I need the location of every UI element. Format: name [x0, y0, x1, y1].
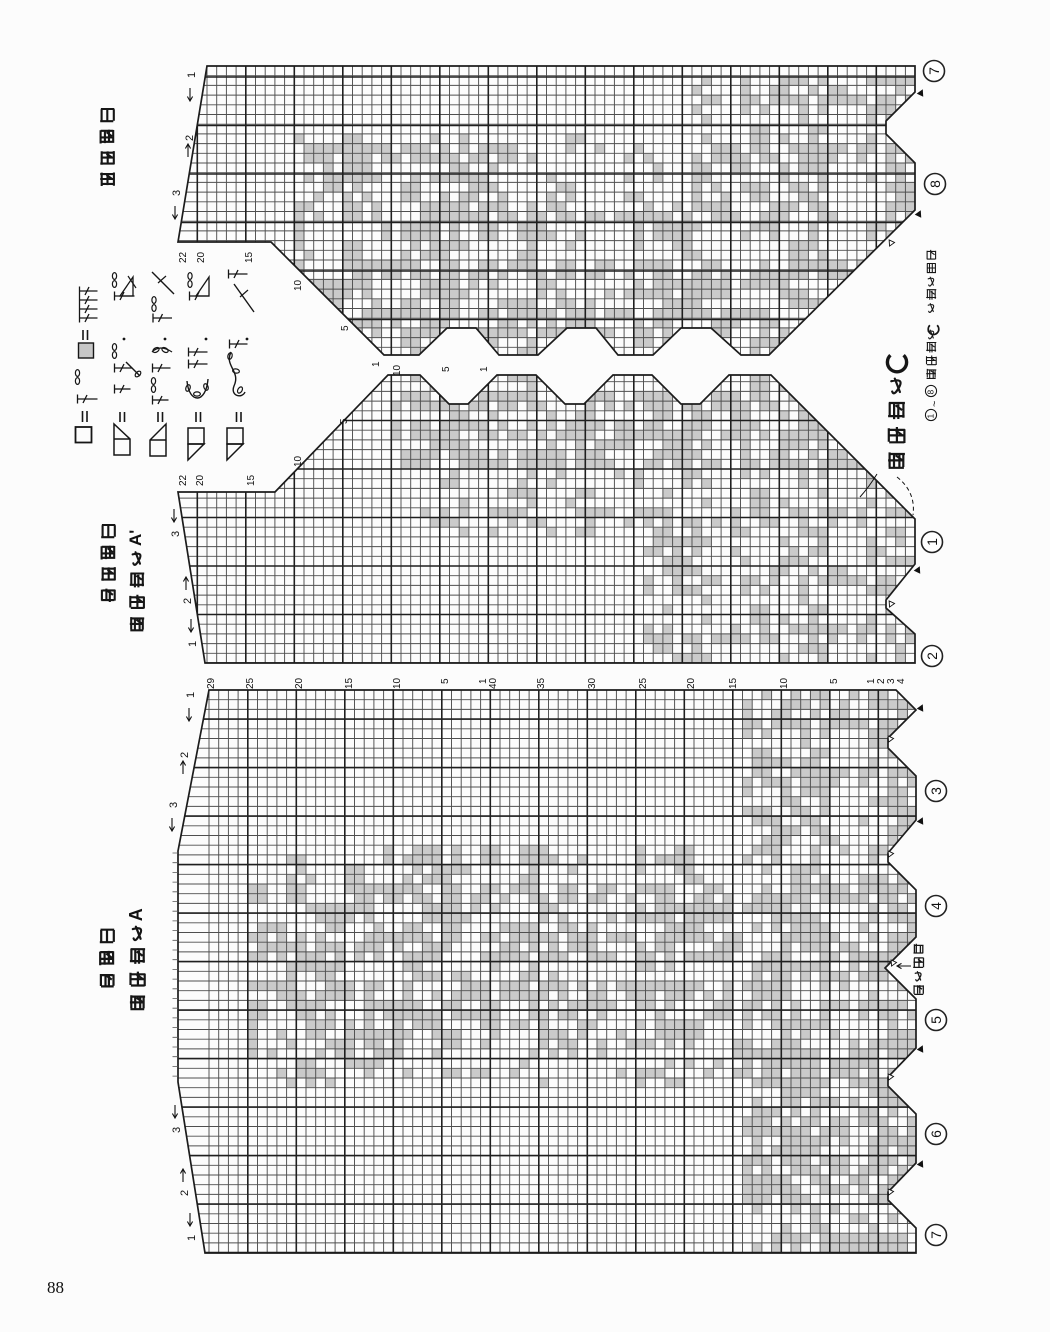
svg-text:~: ~ — [929, 401, 941, 407]
svg-text:1: 1 — [185, 692, 197, 698]
svg-text:20: 20 — [686, 677, 697, 689]
svg-text:25: 25 — [638, 677, 649, 689]
svg-text:10: 10 — [392, 677, 403, 689]
svg-text:1: 1 — [479, 366, 490, 372]
svg-text:15: 15 — [246, 474, 257, 486]
svg-text:7: 7 — [926, 67, 942, 75]
svg-text:2: 2 — [184, 135, 196, 141]
svg-text:22: 22 — [178, 251, 189, 263]
svg-text:10: 10 — [392, 364, 403, 376]
svg-text:5: 5 — [440, 678, 451, 684]
svg-text:3: 3 — [171, 190, 183, 196]
svg-text:15: 15 — [344, 677, 355, 689]
svg-text:5: 5 — [928, 1016, 944, 1024]
svg-text:1: 1 — [186, 1235, 198, 1241]
svg-text:2: 2 — [179, 752, 191, 758]
svg-text:10: 10 — [779, 677, 790, 689]
svg-text:3: 3 — [168, 802, 180, 808]
svg-text:1: 1 — [924, 538, 940, 546]
svg-text:8: 8 — [926, 390, 936, 395]
svg-text:1: 1 — [187, 641, 199, 647]
svg-text:1: 1 — [186, 72, 198, 78]
svg-text:A': A' — [126, 530, 145, 546]
svg-text:2: 2 — [182, 598, 194, 604]
svg-text:6: 6 — [928, 1130, 944, 1138]
svg-text:1: 1 — [371, 361, 382, 367]
svg-text:1: 1 — [926, 414, 936, 419]
svg-text:8: 8 — [927, 180, 943, 188]
svg-text:4: 4 — [896, 678, 907, 684]
svg-text:5: 5 — [829, 678, 840, 684]
svg-text:10: 10 — [293, 455, 304, 467]
svg-text:20: 20 — [195, 474, 206, 486]
svg-text:5: 5 — [340, 325, 351, 331]
svg-text:29: 29 — [206, 677, 217, 689]
svg-text:15: 15 — [244, 251, 255, 263]
svg-text:88: 88 — [47, 1278, 64, 1297]
svg-text:7: 7 — [928, 1231, 944, 1239]
svg-text:35: 35 — [536, 677, 547, 689]
svg-text:5: 5 — [441, 366, 452, 372]
svg-text:A: A — [126, 908, 146, 921]
svg-text:15: 15 — [728, 677, 739, 689]
svg-text:4: 4 — [928, 902, 944, 910]
svg-text:2: 2 — [179, 1190, 191, 1196]
svg-text:3: 3 — [928, 787, 944, 795]
svg-text:20: 20 — [294, 677, 305, 689]
svg-text:22: 22 — [178, 474, 189, 486]
svg-text:3: 3 — [170, 531, 182, 537]
svg-text:3: 3 — [171, 1127, 183, 1133]
svg-text:20: 20 — [196, 251, 207, 263]
svg-text:2: 2 — [924, 652, 940, 660]
svg-text:30: 30 — [587, 677, 598, 689]
svg-text:25: 25 — [245, 677, 256, 689]
svg-text:5: 5 — [339, 418, 350, 424]
svg-text:10: 10 — [293, 279, 304, 291]
svg-text:40: 40 — [488, 677, 499, 689]
